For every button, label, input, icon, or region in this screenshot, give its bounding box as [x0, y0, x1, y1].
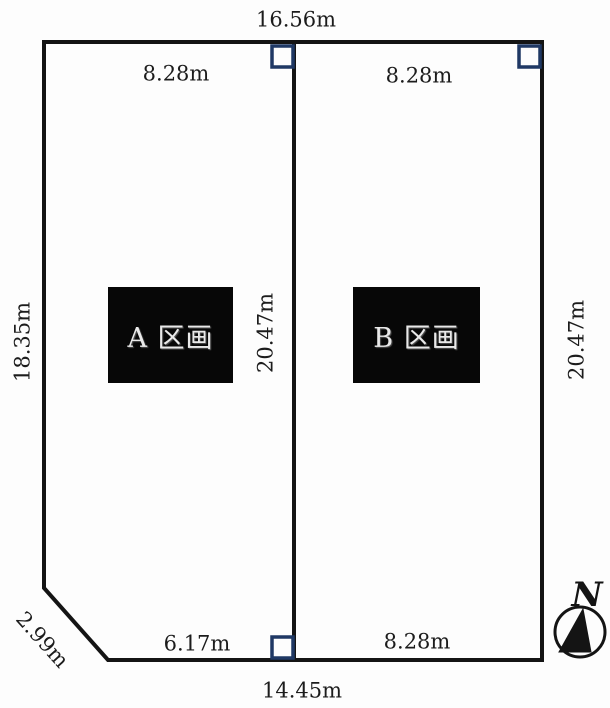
plot-b-label: B 区画 [373, 316, 459, 355]
dimension-top-total: 16.56m [256, 10, 336, 31]
plot-a-label: A 区画 [127, 316, 213, 355]
land-plot-diagram: 16.56m 8.28m 8.28m 18.35m 20.47m 20.47m … [0, 0, 610, 708]
dimension-center-divider: 20.47m [256, 293, 277, 373]
dimension-top-plot-a: 8.28m [143, 64, 210, 85]
compass-north-label: N [571, 578, 602, 612]
dimension-bottom-plot-a: 6.17m [164, 634, 231, 655]
survey-marker-icon [519, 46, 540, 67]
dimension-bottom-total: 14.45m [262, 681, 342, 702]
plot-drawing [0, 0, 610, 708]
survey-marker-icon [272, 46, 293, 67]
dimension-top-plot-b: 8.28m [386, 66, 453, 87]
dimension-bottom-plot-b: 8.28m [384, 632, 451, 653]
dimension-right-side: 20.47m [567, 300, 588, 380]
dimension-left-side: 18.35m [13, 302, 34, 382]
plot-a-label-box: A 区画 [108, 287, 233, 383]
survey-marker-icon [272, 637, 293, 658]
plot-b-label-box: B 区画 [353, 287, 480, 383]
